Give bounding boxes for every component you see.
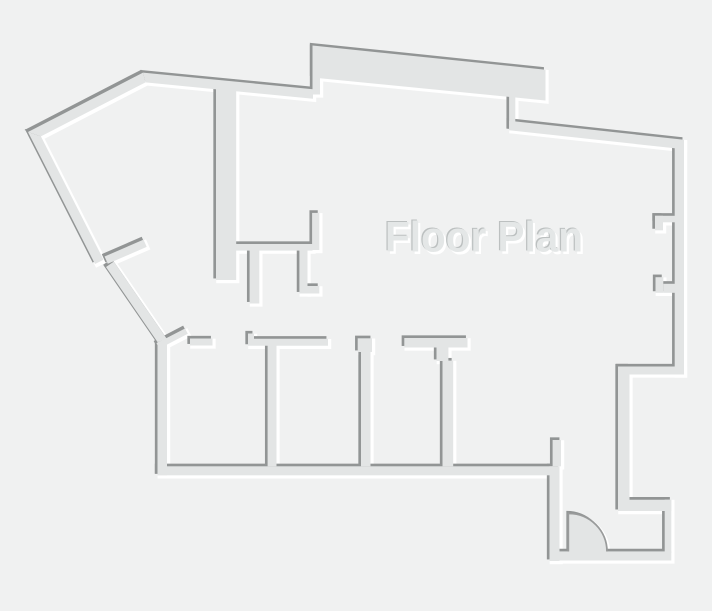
svg-text:Floor Plan: Floor Plan	[385, 214, 583, 262]
